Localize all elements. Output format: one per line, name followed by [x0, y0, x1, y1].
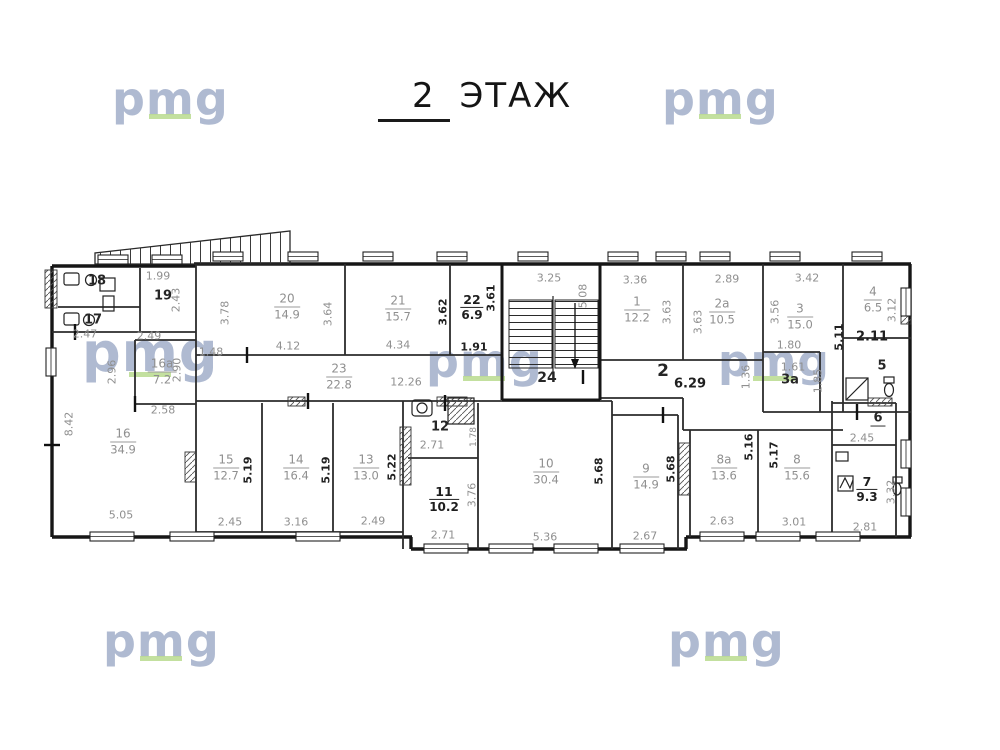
room-3a-number: 3a [781, 374, 799, 389]
room-8-label: 815.6 [784, 453, 810, 482]
dim-label: 2.49 [137, 331, 162, 344]
dim-label: 2.71 [420, 440, 445, 453]
dim-label: 2.49 [361, 516, 386, 529]
dim-label: 2.67 [633, 531, 658, 544]
dim-label: 1.61 [781, 362, 806, 375]
dim-label: 12.26 [390, 377, 422, 390]
room-9-label: 914.9 [633, 462, 659, 491]
dim-label: 2.90 [172, 358, 185, 383]
dim-label: 3.63 [662, 300, 675, 325]
room-3-label: 315.0 [787, 302, 813, 331]
room-15-label: 1512.7 [213, 453, 239, 482]
dim-label: 3.78 [220, 301, 233, 326]
room-12-number: 12 [431, 421, 449, 436]
floor-plan-page: 2ЭТАЖ pmg pmg pmg pmg pmg pmg pmg [0, 0, 1000, 750]
dim-label: 5.17 [769, 441, 782, 468]
dim-label: 2.81 [853, 522, 878, 535]
room-1-label: 112.2 [624, 295, 650, 324]
dim-label: 4.34 [386, 340, 411, 353]
room-21-label: 2115.7 [385, 294, 411, 323]
room-13-label: 1313.0 [353, 453, 379, 482]
dim-label: 2.71 [431, 530, 456, 543]
dim-label: 3.12 [887, 298, 900, 323]
room-11-label: 1110.2 [429, 485, 459, 515]
dim-label: 6.29 [674, 378, 706, 393]
room-20-label: 2014.9 [274, 292, 300, 321]
room-5-number: 5 [877, 360, 886, 375]
dim-label: 3.16 [284, 517, 309, 530]
dim-label: 4.12 [276, 341, 301, 354]
dim-label: 1.99 [146, 271, 171, 284]
dim-label: 5.05 [109, 510, 134, 523]
dim-label: 3.63 [693, 310, 706, 335]
dim-label: 3.36 [623, 275, 648, 288]
dim-label: 2.11 [856, 331, 888, 346]
room-22-label: 226.9 [460, 293, 483, 323]
dim-label: 3.62 [438, 298, 451, 325]
dim-label: 2.45 [218, 517, 243, 530]
room-14-label: 1416.4 [283, 453, 309, 482]
room-2a-label: 2a10.5 [709, 297, 735, 326]
dim-label: 3.42 [795, 273, 820, 286]
dim-label: 2.96 [107, 360, 120, 385]
dim-label: 5.68 [594, 457, 607, 484]
dim-label: 5.36 [533, 532, 558, 545]
dim-label: 5.11 [834, 323, 847, 350]
room-18-number: 18 [88, 275, 106, 290]
dim-label: 5.19 [321, 456, 334, 483]
dim-label: 3.25 [537, 273, 562, 286]
room-10-label: 1030.4 [533, 457, 559, 486]
room-6-number: 6 [870, 412, 885, 427]
plan-labels-layer: 2014.92115.7226.9112.22a10.5315.046.5232… [0, 0, 1000, 750]
room-17-number: 17 [84, 314, 102, 329]
dim-label: 2.45 [850, 433, 875, 446]
dim-label: 2.58 [151, 405, 176, 418]
dim-label: 1.80 [777, 340, 802, 353]
dim-label: 3.56 [770, 300, 783, 325]
dim-label: 3.32 [886, 480, 899, 505]
room-16-label: 1634.9 [110, 427, 136, 456]
dim-label: 1.48 [199, 347, 224, 360]
dim-label: 3.61 [486, 284, 499, 311]
dim-label: 8.42 [64, 412, 77, 437]
stair-24-number: 24 [537, 370, 556, 386]
corridor-2-number: 2 [657, 362, 669, 382]
dim-label: 2.47 [73, 329, 98, 342]
room-7-label: 79.3 [856, 475, 877, 505]
dim-label: 2.89 [715, 274, 740, 287]
dim-label: 5.22 [387, 453, 400, 480]
dim-label: 3.76 [467, 483, 480, 508]
dim-label: 5.16 [744, 433, 757, 460]
dim-label: 5.19 [243, 456, 256, 483]
dim-label: 1.85 [813, 369, 826, 394]
dim-label: 3.01 [782, 517, 807, 530]
dim-label: 1.36 [741, 365, 754, 390]
dim-label: 5.68 [666, 455, 679, 482]
dim-label: 5.08 [578, 284, 591, 309]
room-4-label: 46.5 [864, 285, 882, 314]
dim-label: 1.78 [469, 427, 479, 447]
dim-label: 1.91 [460, 342, 487, 355]
room-8a-label: 8a13.6 [711, 453, 737, 482]
dim-label: 2.63 [710, 516, 735, 529]
dim-label: 3.64 [323, 302, 336, 327]
dim-label: 2.43 [171, 288, 184, 313]
room-23-label: 2322.8 [326, 362, 352, 391]
